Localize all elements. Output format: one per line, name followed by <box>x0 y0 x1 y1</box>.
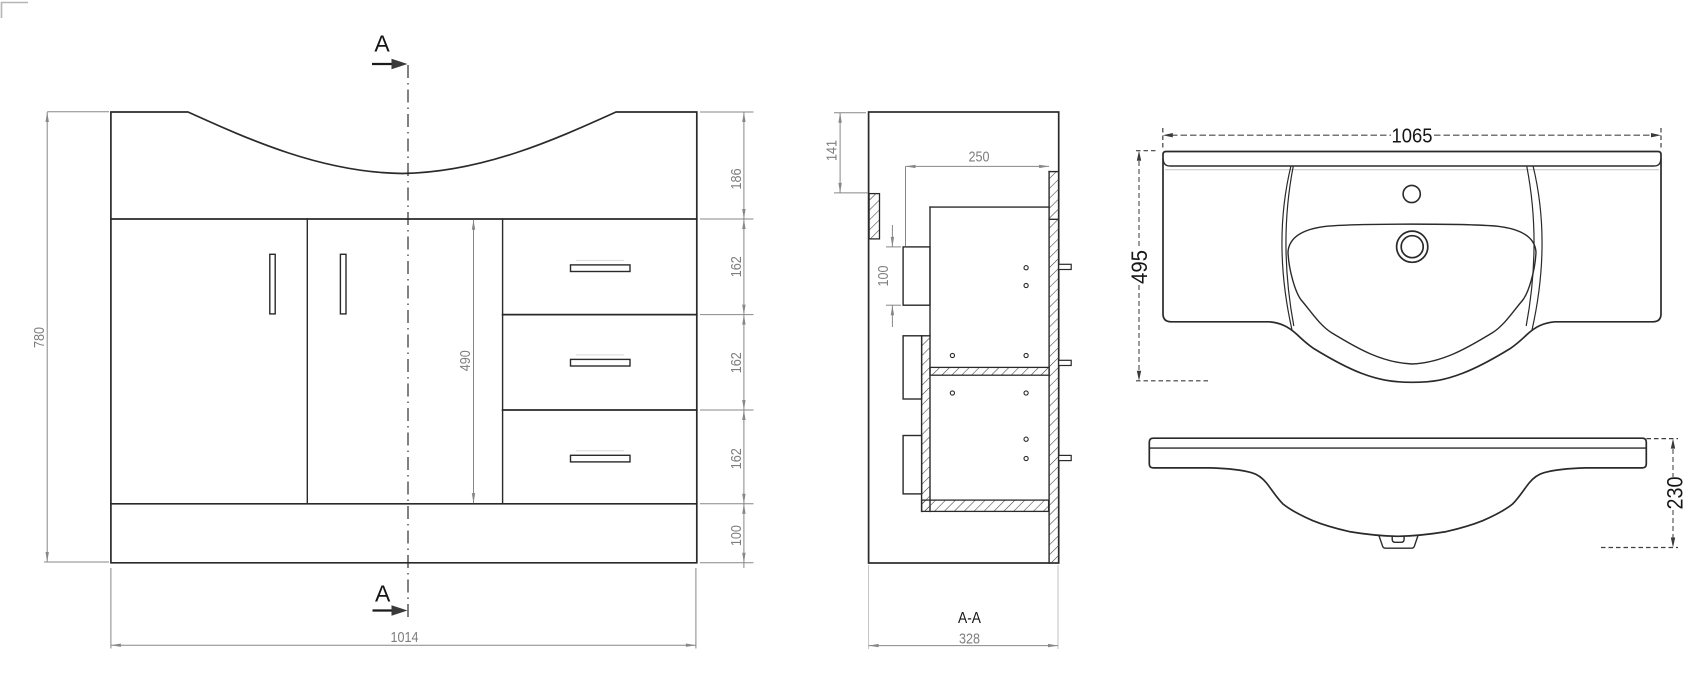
svg-text:250: 250 <box>969 149 990 166</box>
svg-text:162: 162 <box>728 256 745 277</box>
svg-text:495: 495 <box>1127 250 1152 284</box>
svg-text:100: 100 <box>875 266 892 287</box>
svg-text:162: 162 <box>728 448 745 469</box>
svg-text:A: A <box>374 31 390 57</box>
svg-text:A-A: A-A <box>958 610 982 627</box>
svg-text:1014: 1014 <box>391 629 419 646</box>
svg-text:780: 780 <box>31 327 48 348</box>
svg-text:A: A <box>375 581 391 607</box>
svg-text:141: 141 <box>824 140 841 161</box>
svg-text:230: 230 <box>1662 477 1687 510</box>
svg-text:328: 328 <box>959 630 980 647</box>
svg-text:490: 490 <box>457 350 474 371</box>
svg-text:186: 186 <box>728 169 745 190</box>
svg-text:162: 162 <box>728 352 745 373</box>
svg-text:1065: 1065 <box>1392 124 1433 147</box>
svg-text:100: 100 <box>728 525 745 546</box>
